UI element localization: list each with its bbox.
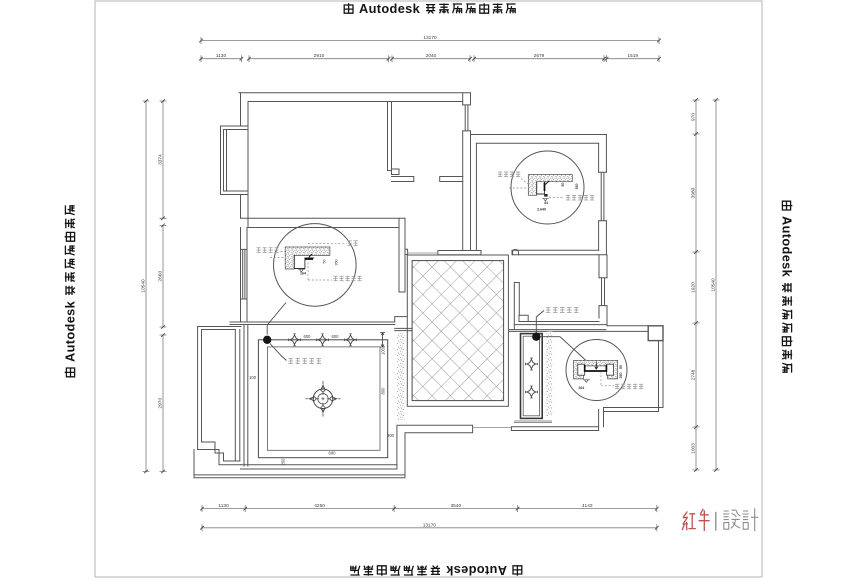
- svg-text:3374: 3374: [157, 154, 163, 165]
- svg-text:100: 100: [380, 347, 385, 355]
- svg-text:50: 50: [323, 260, 327, 264]
- svg-text:350: 350: [619, 373, 623, 379]
- svg-text:4250: 4250: [314, 503, 325, 509]
- svg-text:1130: 1130: [216, 53, 227, 59]
- svg-text:50: 50: [619, 365, 623, 369]
- svg-text:13170: 13170: [423, 35, 437, 41]
- svg-text:2660: 2660: [157, 271, 163, 282]
- svg-text:800: 800: [380, 387, 385, 395]
- svg-text:164: 164: [578, 386, 584, 390]
- svg-text:200: 200: [281, 458, 286, 466]
- svg-text:4143: 4143: [582, 503, 593, 509]
- svg-text:13170: 13170: [423, 522, 437, 528]
- svg-text:164: 164: [300, 272, 306, 276]
- svg-text:1130: 1130: [218, 503, 229, 509]
- svg-text:600: 600: [304, 334, 312, 339]
- svg-text:10540: 10540: [140, 279, 146, 293]
- svg-text:600: 600: [329, 450, 337, 455]
- svg-text:1519: 1519: [627, 53, 638, 59]
- svg-text:3540: 3540: [450, 503, 461, 509]
- svg-text:350: 350: [335, 260, 339, 266]
- svg-text:970: 970: [690, 113, 696, 121]
- svg-text:50: 50: [561, 183, 565, 187]
- svg-text:300: 300: [387, 433, 395, 438]
- svg-text:2970: 2970: [157, 398, 163, 409]
- svg-text:2679: 2679: [534, 53, 545, 59]
- svg-text:2.640: 2.640: [537, 208, 546, 212]
- svg-text:1920: 1920: [690, 282, 696, 293]
- svg-text:2748: 2748: [690, 369, 696, 380]
- svg-text:10540: 10540: [710, 278, 716, 292]
- svg-text:3980: 3980: [690, 187, 696, 198]
- svg-text:2910: 2910: [314, 53, 325, 59]
- svg-text:350: 350: [575, 184, 579, 190]
- svg-text:600: 600: [332, 334, 340, 339]
- svg-text:44: 44: [544, 201, 548, 205]
- svg-text:1003: 1003: [690, 443, 696, 454]
- svg-text:2040: 2040: [426, 53, 437, 59]
- svg-text:100: 100: [249, 375, 257, 380]
